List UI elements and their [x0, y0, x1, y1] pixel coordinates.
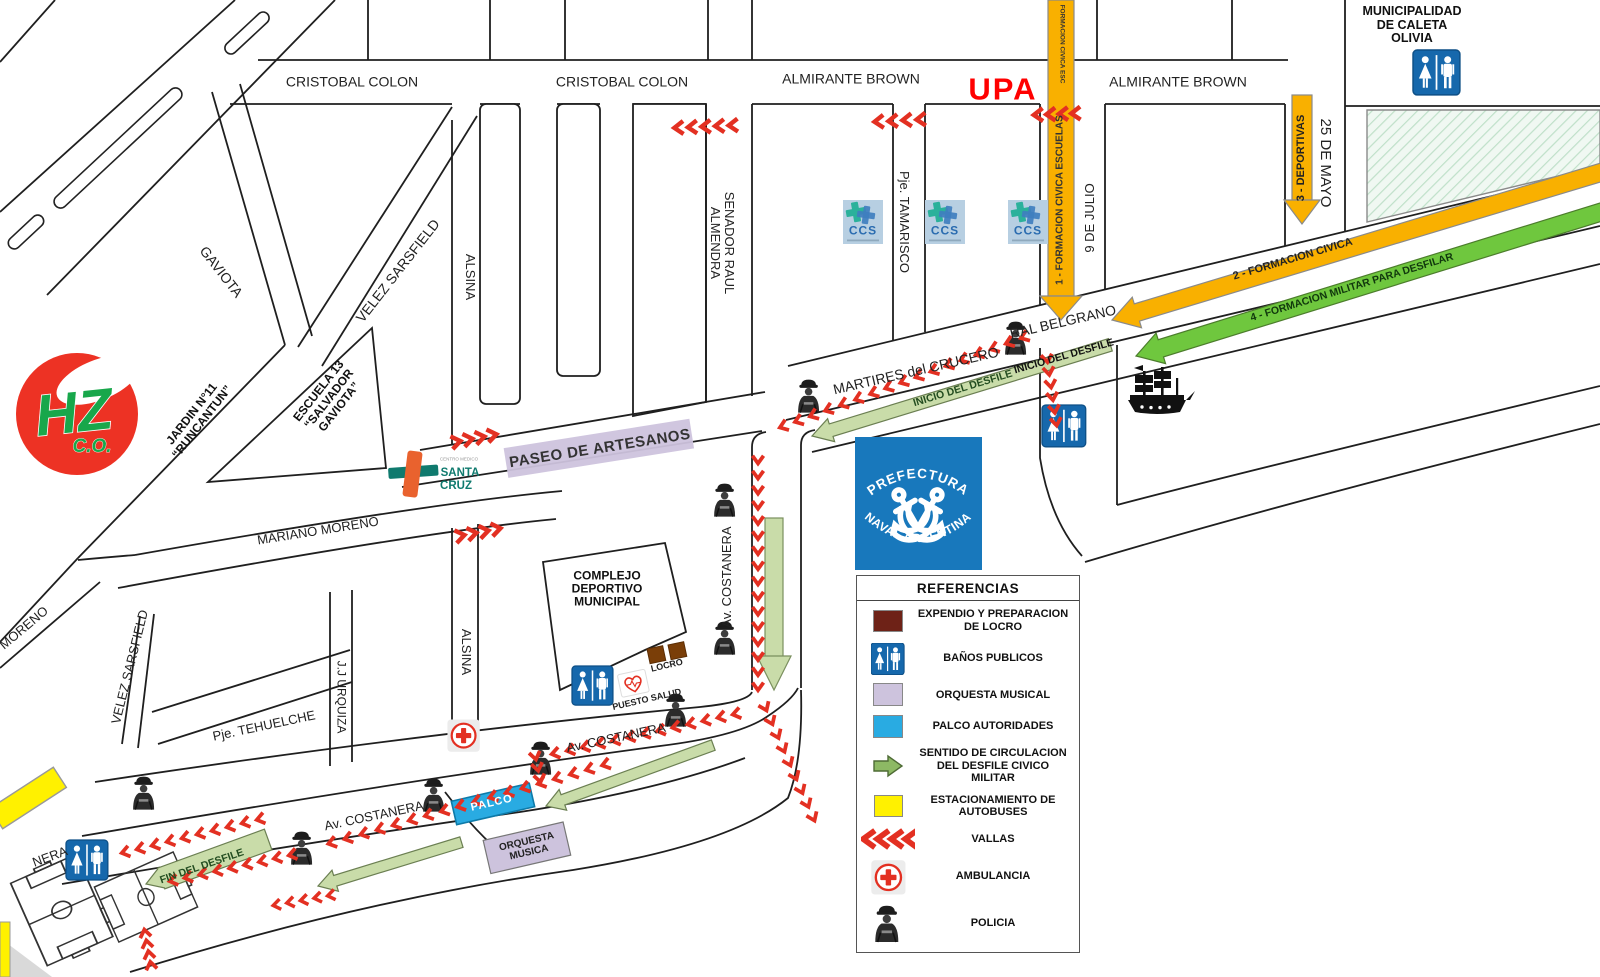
- street-label-senador-raul-almendra: SENADOR RAULALMENDRA: [708, 192, 736, 295]
- valla-chevron: [752, 501, 763, 509]
- valla-chevron: [770, 729, 783, 740]
- valla-chevron: [752, 516, 763, 524]
- police-icon: [798, 380, 819, 413]
- valla-chevron: [258, 855, 268, 867]
- legend-item-policia: POLICIA: [861, 904, 1075, 944]
- police-icon: [423, 779, 444, 812]
- legend-item-locro: EXPENDIO Y PREPARACION DE LOCRO: [861, 608, 1075, 633]
- valla-chevron: [391, 818, 401, 831]
- valla-chevron: [752, 562, 763, 570]
- valla-chevron: [800, 798, 813, 809]
- valla-chevron: [794, 784, 807, 795]
- valla-chevron: [552, 772, 562, 785]
- street-label-9-de-julio: 9 DE JULIO: [1083, 183, 1097, 252]
- valla-chevron: [486, 428, 497, 442]
- valla-chevron: [143, 950, 155, 960]
- street-label-pje-tamarisco: Pje. TAMARISCO: [897, 171, 911, 273]
- valla-chevron: [752, 486, 763, 494]
- valla-chevron: [240, 816, 250, 829]
- street-lines: [0, 0, 1600, 972]
- municipalidad-label: MUNICIPALIDADDE CALETAOLIVIA: [1362, 5, 1461, 46]
- valla-chevron: [782, 756, 795, 767]
- valla-chevron: [150, 839, 160, 852]
- valla-chevron: [601, 758, 611, 771]
- restroom-icon: [1042, 405, 1086, 447]
- locro-swatch: [873, 610, 903, 632]
- restroom-icon: [1413, 50, 1460, 95]
- valla-chevron: [752, 456, 763, 464]
- ccs-label: CCS: [931, 225, 959, 238]
- valla-chevron: [1046, 392, 1058, 401]
- valla-chevron: [585, 763, 595, 776]
- valla-chevron: [752, 577, 763, 585]
- valla-chevron: [686, 717, 696, 729]
- valla-chevron: [255, 813, 265, 826]
- restroom-icon: [572, 666, 613, 705]
- complejo-label: COMPLEJODEPORTIVOMUNICIPAL: [572, 570, 643, 609]
- street-label-alsina: ALSINA: [459, 629, 473, 675]
- puesto-salud-icon: [617, 669, 649, 697]
- parade-direction-arrow: [757, 518, 791, 690]
- valla-chevron: [225, 820, 235, 833]
- ambulance-icon: [447, 719, 479, 751]
- street-label-cristobal-colon: CRISTOBAL COLON: [286, 74, 418, 89]
- valla-chevron: [752, 531, 763, 539]
- legend-item-vallas: VALLAS: [861, 828, 1075, 850]
- legend-item-ambulancia: AMBULANCIA: [861, 859, 1075, 895]
- valla-chevron: [1034, 108, 1044, 121]
- valla-chevron: [902, 113, 912, 126]
- street-label-almirante-brown: ALMIRANTE BROWN: [1109, 74, 1247, 89]
- street-label-jj-urquiza: J.J URQUIZA: [335, 661, 348, 734]
- direction-arrow-icon: [872, 753, 904, 779]
- legend-item-orquesta: ORQUESTA MUSICAL: [861, 683, 1075, 706]
- valla-chevron: [732, 707, 742, 719]
- valla-chevron: [701, 714, 711, 726]
- avenue-medians: [6, 10, 272, 252]
- valla-chevron: [327, 836, 337, 849]
- formacion-3-label: 3 - DEPORTIVAS: [1296, 115, 1308, 202]
- valla-chevron: [210, 824, 220, 837]
- map-canvas: HZ C.O. PREFECTURA NAVAL ARGENTINA: [0, 0, 1600, 977]
- valla-chevron: [165, 835, 175, 848]
- valla-chevron: [752, 592, 763, 600]
- valla-chevron: [273, 852, 283, 864]
- street-label-av-costanera: Av. COSTANERA: [720, 526, 734, 627]
- valla-chevron: [1045, 379, 1057, 388]
- legend-item-banos: BAÑOS PUBLICOS: [861, 643, 1075, 675]
- legend: REFERENCIAS EXPENDIO Y PREPARACION DE LO…: [856, 575, 1080, 953]
- legend-item-sentido: SENTIDO DE CIRCULACION DEL DESFILE CIVIC…: [861, 747, 1075, 785]
- vallas-icon: [861, 828, 915, 850]
- svg-text:C.O.: C.O.: [72, 436, 111, 457]
- street-label-almirante-brown: ALMIRANTE BROWN: [782, 71, 920, 86]
- valla-chevron: [313, 892, 322, 903]
- police-icon: [133, 777, 154, 810]
- orquesta-swatch: [873, 683, 903, 706]
- santa-cruz-label: CRUZ: [440, 480, 472, 492]
- valla-chevron: [778, 420, 789, 433]
- valla-chevron: [752, 637, 763, 645]
- legend-item-estacionamiento: ESTACIONAMIENTO DE AUTOBUSES: [861, 794, 1075, 819]
- valla-chevron: [490, 522, 501, 536]
- valla-chevron: [752, 607, 763, 615]
- valla-chevron: [120, 846, 130, 859]
- bus-parking-2: [0, 922, 10, 977]
- ccs-label: CCS: [849, 225, 877, 238]
- police-icon: [714, 484, 735, 517]
- valla-chevron: [551, 747, 561, 759]
- valla-chevron: [286, 897, 295, 908]
- valla-chevron: [141, 939, 153, 949]
- palco-swatch: [873, 715, 903, 738]
- parade-band: [315, 832, 465, 897]
- valla-chevron: [752, 622, 763, 630]
- restroom-icon: [66, 840, 108, 880]
- valla-chevron: [272, 899, 281, 910]
- santa-cruz-label: SANTA: [441, 467, 480, 479]
- santa-cruz-logo: [388, 450, 439, 497]
- prefectura-logo: PREFECTURA NAVAL ARGENTINA: [855, 437, 982, 570]
- parking-swatch: [874, 795, 903, 817]
- parade-map: HZ C.O. PREFECTURA NAVAL ARGENTINA CRIST…: [0, 0, 1600, 977]
- formacion-1-label: 1 - FORMACION CIVICA ESCUELAS: [1056, 115, 1067, 285]
- street-label-cristobal-colon: CRISTOBAL COLON: [556, 74, 688, 89]
- street-label-25-de-mayo: 25 DE MAYO: [1317, 119, 1333, 208]
- police-icon: [873, 904, 903, 944]
- santa-cruz-caption: CENTRO MEDICO: [440, 458, 478, 463]
- valla-chevron: [752, 683, 763, 691]
- valla-chevron: [180, 831, 190, 844]
- street-label-alsina: ALSINA: [463, 254, 477, 300]
- valla-chevron: [135, 842, 145, 855]
- valla-chevron: [806, 811, 819, 822]
- valla-chevron: [838, 397, 849, 410]
- bus-parking: [0, 767, 66, 829]
- restroom-icon: [871, 643, 905, 675]
- valla-chevron: [300, 894, 309, 905]
- valla-chevron: [195, 827, 205, 840]
- formacion-1-top-label: FORMACION CIVICA ESC: [1058, 5, 1065, 84]
- ccs-label: CCS: [1014, 225, 1042, 238]
- valla-chevron: [776, 742, 789, 753]
- valla-chevron: [139, 929, 151, 939]
- valla-chevron: [728, 119, 738, 132]
- valla-chevron: [716, 711, 726, 723]
- valla-chevron: [462, 432, 473, 446]
- valla-chevron: [715, 119, 725, 132]
- hz-logo: HZ C.O.: [16, 345, 146, 475]
- valla-chevron: [758, 701, 771, 712]
- valla-chevron: [874, 115, 884, 128]
- legend-title: REFERENCIAS: [857, 576, 1079, 601]
- valla-chevron: [752, 667, 763, 675]
- ship-icon: [1128, 365, 1195, 414]
- valla-chevron: [752, 546, 763, 554]
- legend-item-palco: PALCO AUTORIDADES: [861, 715, 1075, 738]
- upa-label: UPA: [968, 72, 1037, 105]
- ambulance-icon: [870, 859, 906, 895]
- valla-chevron: [569, 767, 579, 780]
- valla-chevron: [327, 889, 336, 900]
- valla-chevron: [474, 430, 485, 444]
- valla-chevron: [752, 471, 763, 479]
